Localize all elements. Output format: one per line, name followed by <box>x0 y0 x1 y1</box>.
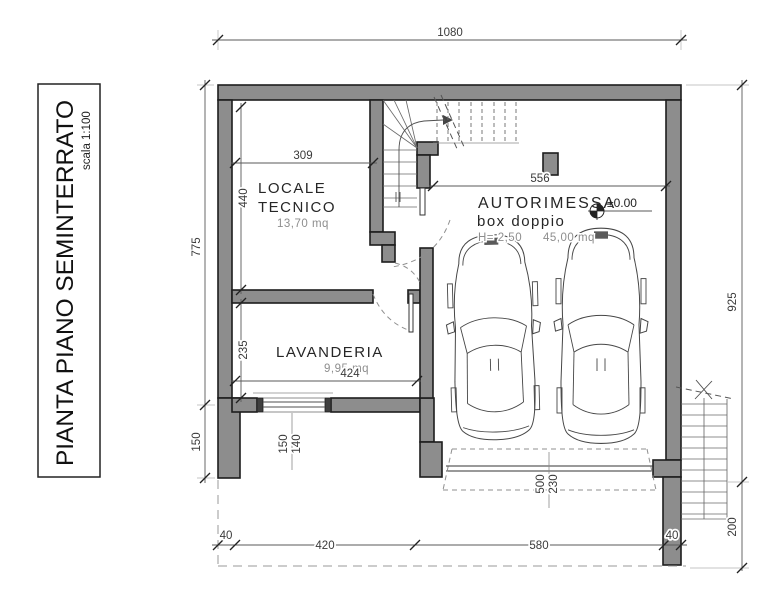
room-label-autorimessa: AUTORIMESSA <box>478 195 616 212</box>
dim-bottom-40l-label: 40 <box>220 530 233 542</box>
dim-top-label: 1080 <box>437 27 463 39</box>
door-leaf-laundry <box>409 294 413 332</box>
dim-right: 925 200 <box>686 80 749 573</box>
title-block: PIANTA PIANO SEMINTERRATO scala 1:100 <box>38 84 100 477</box>
room-label-locale-tecnico-1: LOCALE <box>258 180 326 197</box>
window-jamb-left <box>257 398 263 412</box>
wall-stair-stub-v <box>417 155 430 188</box>
dim-right-upper-label: 925 <box>727 292 739 311</box>
door-arc-locale-tecnico <box>395 263 423 290</box>
dim-lt-height-label: 440 <box>238 188 250 207</box>
door-arc-laundry <box>373 294 411 331</box>
dim-top: 1080 <box>212 27 687 50</box>
dim-bottom-420-label: 420 <box>315 540 334 552</box>
floor-plan-page: PIANTA PIANO SEMINTERRATO scala 1:100 <box>0 0 768 598</box>
dim-garage-width-label: 556 <box>530 173 549 185</box>
drawing-scale: scala 1:100 <box>81 111 93 170</box>
car-left <box>444 234 543 441</box>
wall-garage-west <box>420 248 433 398</box>
room-label-lavanderia: LAVANDERIA <box>276 344 384 361</box>
pillar-garage <box>543 153 558 175</box>
wall-lt-jog <box>370 232 395 245</box>
dim-lav-height-label: 235 <box>238 340 250 359</box>
window-jamb-right <box>325 398 331 412</box>
dim-garage-door-height-label: 230 <box>548 474 560 493</box>
window-laundry <box>253 393 333 470</box>
partition-stair <box>420 188 425 215</box>
room-area-locale-tecnico: 13,70 mq <box>277 218 329 230</box>
wall-laundry-north <box>232 290 373 303</box>
dim-left: 775 150 <box>191 80 215 483</box>
pier-garage-door-left <box>420 442 442 477</box>
dim-bottom: 40 420 580 40 <box>212 480 687 566</box>
car-right <box>554 228 648 443</box>
floor-plan-svg: PIANTA PIANO SEMINTERRATO scala 1:100 <box>0 0 768 598</box>
dim-window: 150 140 <box>278 434 303 453</box>
stair-external <box>676 380 734 519</box>
pier-bottom-right <box>663 477 681 565</box>
wall-right <box>666 100 681 460</box>
room-height-autorimessa: H= 2,50 <box>478 232 522 244</box>
wall-right-jog <box>653 460 681 477</box>
wall-stair-stub-h <box>417 142 438 155</box>
wall-laundry-south-right <box>331 398 420 412</box>
drawing-title: PIANTA PIANO SEMINTERRATO <box>52 100 79 466</box>
dim-garage-door: 500 230 <box>535 474 560 493</box>
dim-left-upper-label: 775 <box>191 237 203 256</box>
room-sublabel-autorimessa: box doppio <box>477 213 565 230</box>
stair-internal <box>383 95 519 207</box>
wall-top <box>218 85 681 100</box>
dim-lt-width-label: 309 <box>293 150 312 162</box>
wall-laundry-south-left <box>232 398 257 412</box>
wall-garage-west-lower <box>420 398 434 442</box>
dim-bottom-40r-label: 40 <box>666 530 679 542</box>
wall-left <box>218 100 232 398</box>
wall-lt-right-low <box>382 245 395 262</box>
dim-right-lower-label: 200 <box>727 517 739 536</box>
dim-lav-width-label: 424 <box>340 368 360 380</box>
room-label-locale-tecnico-2: TECNICO <box>258 199 336 216</box>
dim-window-width-label: 150 <box>278 434 290 453</box>
dim-garage: 556 <box>428 173 671 191</box>
dim-garage-door-width-label: 500 <box>535 474 547 493</box>
wall-lt-right <box>370 100 383 232</box>
dim-window-height-label: 140 <box>291 434 303 453</box>
dim-left-lower-label: 150 <box>191 432 203 451</box>
room-area-autorimessa: 45,00 mq <box>543 232 595 244</box>
dim-bottom-580-label: 580 <box>529 540 548 552</box>
